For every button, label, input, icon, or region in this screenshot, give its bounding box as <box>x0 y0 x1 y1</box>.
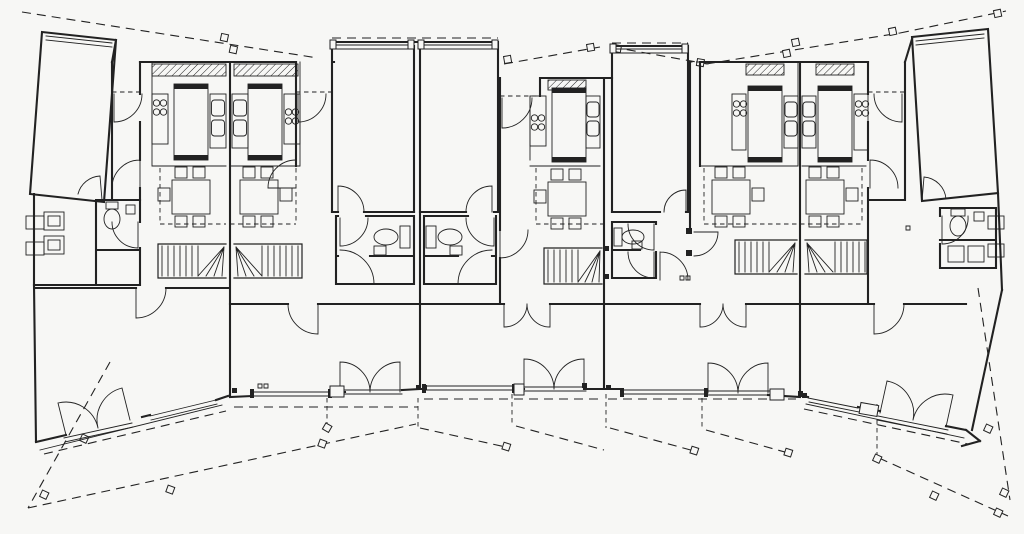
counter <box>816 64 854 75</box>
canopy-post <box>587 43 595 51</box>
wall-pier <box>770 389 784 400</box>
threshold-mark <box>686 228 692 234</box>
wall-pier <box>514 384 524 395</box>
floor-plan-drawing <box>0 0 1024 534</box>
canopy-post <box>220 33 228 41</box>
paper-background <box>0 0 1024 534</box>
canopy-post <box>888 27 896 35</box>
floor-plan-page <box>0 0 1024 534</box>
counter <box>234 64 298 76</box>
fence-post <box>502 442 511 451</box>
canopy-post <box>229 45 237 53</box>
canopy-post <box>993 9 1001 17</box>
canopy-post <box>504 55 512 63</box>
fence-post <box>784 448 793 457</box>
canopy-post <box>791 38 799 46</box>
canopy-post <box>782 49 790 57</box>
counter <box>746 64 784 75</box>
fence-post <box>690 446 699 455</box>
threshold-mark <box>686 250 692 256</box>
wall-pier <box>330 386 344 397</box>
counter <box>152 64 226 76</box>
